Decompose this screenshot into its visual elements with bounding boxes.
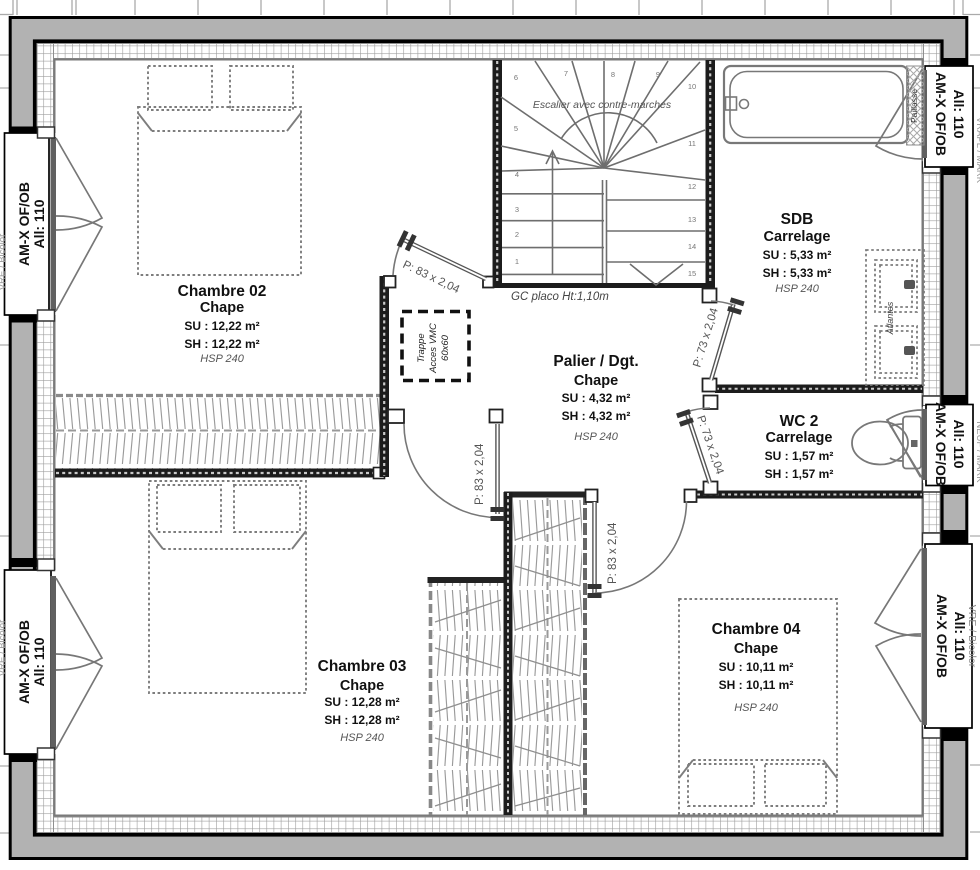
svg-text:SH : 5,33 m²: SH : 5,33 m²	[763, 266, 832, 280]
svg-text:AM-X OF/OB: AM-X OF/OB	[934, 594, 950, 678]
svg-text:HSP 240: HSP 240	[574, 431, 619, 443]
svg-text:HSP 240: HSP 240	[775, 283, 820, 295]
svg-text:Chambre 04: Chambre 04	[712, 621, 801, 638]
svg-text:12: 12	[688, 182, 696, 191]
svg-text:2: 2	[515, 230, 519, 239]
svg-text:10: 10	[688, 82, 696, 91]
svg-text:6: 6	[514, 73, 518, 82]
svg-text:Chape: Chape	[200, 300, 244, 316]
svg-text:SU : 1,57 m²: SU : 1,57 m²	[765, 449, 834, 463]
svg-text:15: 15	[688, 269, 696, 278]
svg-text:VRAPL / MARK: VRAPL / MARK	[974, 117, 980, 184]
svg-text:AM-X OF/OB: AM-X OF/OB	[933, 72, 949, 156]
svg-text:VRE / Bicolor: VRE / Bicolor	[0, 234, 8, 291]
svg-text:Chambre 02: Chambre 02	[178, 283, 267, 300]
svg-text:GC placo Ht:1,10m: GC placo Ht:1,10m	[511, 291, 609, 303]
svg-text:P: 83 x 2,04: P: 83 x 2,04	[474, 443, 486, 505]
svg-text:4: 4	[515, 170, 519, 179]
svg-text:SH : 4,32 m²: SH : 4,32 m²	[562, 409, 631, 423]
svg-text:7: 7	[564, 69, 568, 78]
svg-text:Escalier avec contre-marches: Escalier avec contre-marches	[533, 99, 672, 111]
svg-text:Palier / Dgt.: Palier / Dgt.	[553, 353, 638, 370]
svg-text:SH : 12,28 m²: SH : 12,28 m²	[324, 713, 399, 727]
svg-text:VRE / Bicolor: VRE / Bicolor	[966, 605, 978, 668]
svg-text:AM-X OF/OB: AM-X OF/OB	[16, 182, 32, 266]
svg-text:All: 110: All: 110	[952, 611, 968, 660]
svg-text:AM-X OF/OB: AM-X OF/OB	[933, 402, 949, 486]
svg-text:9: 9	[656, 70, 660, 79]
svg-text:Chambre 03: Chambre 03	[318, 658, 407, 675]
svg-text:AM-X OF/OB: AM-X OF/OB	[16, 620, 32, 704]
svg-text:VRE / Bicolor: VRE / Bicolor	[0, 620, 8, 677]
svg-text:11: 11	[688, 139, 696, 148]
svg-text:1: 1	[515, 257, 519, 266]
svg-text:5: 5	[514, 124, 518, 133]
svg-text:8: 8	[611, 70, 615, 79]
svg-text:60x60: 60x60	[440, 334, 451, 361]
svg-text:SH : 10,11 m²: SH : 10,11 m²	[719, 678, 794, 692]
svg-text:SU : 4,32 m²: SU : 4,32 m²	[562, 391, 631, 405]
svg-text:Chape: Chape	[340, 678, 384, 694]
svg-text:SU : 12,28 m²: SU : 12,28 m²	[324, 695, 399, 709]
svg-text:All: 110: All: 110	[31, 637, 47, 686]
svg-text:SH : 12,22 m²: SH : 12,22 m²	[184, 337, 259, 351]
svg-text:Acces VMC: Acces VMC	[428, 323, 439, 374]
svg-text:13: 13	[688, 215, 696, 224]
svg-text:All: 110: All: 110	[31, 199, 47, 248]
svg-text:All: 110: All: 110	[951, 419, 967, 468]
svg-text:Trappe: Trappe	[416, 333, 427, 362]
svg-text:SU : 12,22 m²: SU : 12,22 m²	[184, 319, 259, 333]
svg-text:P: 83 x 2,04: P: 83 x 2,04	[607, 522, 619, 584]
svg-text:3: 3	[515, 205, 519, 214]
svg-text:Chape: Chape	[734, 641, 778, 657]
svg-text:HSP 240: HSP 240	[734, 702, 779, 714]
svg-text:SH : 1,57 m²: SH : 1,57 m²	[765, 467, 834, 481]
svg-text:NEUF / MARK: NEUF / MARK	[974, 421, 980, 483]
svg-text:Carrelage: Carrelage	[766, 430, 833, 446]
svg-text:Chape: Chape	[574, 373, 618, 389]
svg-text:Paillasse: Paillasse	[909, 89, 919, 123]
svg-text:Carrelage: Carrelage	[764, 229, 831, 245]
svg-text:HSP 240: HSP 240	[340, 732, 385, 744]
svg-text:HSP 240: HSP 240	[200, 353, 245, 365]
svg-text:Atlantes: Atlantes	[885, 301, 895, 335]
svg-text:SU : 10,11 m²: SU : 10,11 m²	[719, 660, 794, 674]
svg-text:All: 110: All: 110	[951, 89, 967, 138]
svg-text:14: 14	[688, 242, 696, 251]
svg-text:SDB: SDB	[781, 211, 814, 228]
svg-text:SU : 5,33 m²: SU : 5,33 m²	[763, 248, 832, 262]
svg-text:WC 2: WC 2	[780, 413, 819, 430]
